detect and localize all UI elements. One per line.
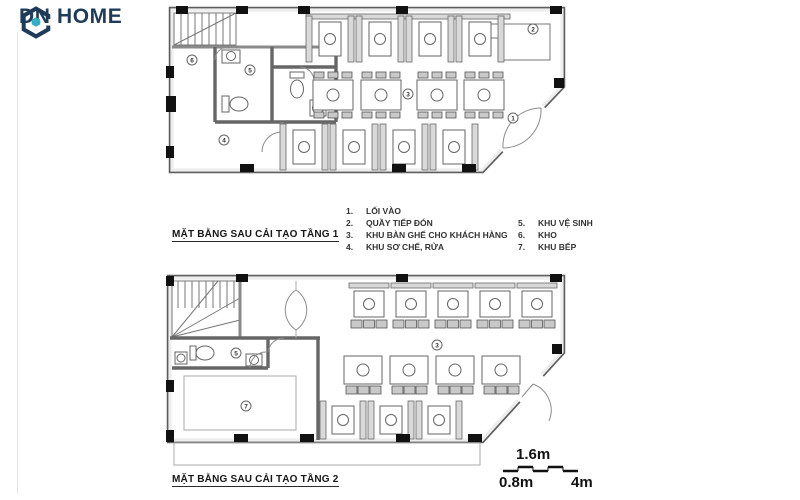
legend-item-kitchen: 7. KHU BẾP (518, 241, 593, 253)
scale-bar (503, 467, 578, 471)
legend-item-prep: 4. KHU SƠ CHẾ, RỬA (346, 241, 508, 253)
room-label-dining-f1: 3 (406, 91, 410, 98)
floor2-balcony-line (174, 443, 480, 465)
floor2-plan: 5 7 3 (166, 274, 562, 465)
room-label-prep: 4 (222, 137, 226, 144)
room-label-dining-f2: 3 (435, 342, 439, 349)
legend-item-dining: 3. KHU BÀN GHẾ CHO KHÁCH HÀNG (346, 229, 508, 241)
page: DN HOME (0, 0, 800, 500)
legend-item-entrance: 1. LỐI VÀO (346, 205, 508, 217)
legend-left-column: 1. LỐI VÀO 2. QUẦY TIẾP ĐÓN 3. KHU BÀN G… (346, 205, 508, 253)
room-label-wc-f2: 5 (234, 350, 238, 357)
scale-label-4m: 4m (571, 474, 593, 491)
room-label-entrance: 1 (511, 115, 515, 122)
legend-right-column: 5. KHU VỆ SINH 6. KHO 7. KHU BẾP (518, 217, 593, 253)
floor1-title: MẶT BẰNG SAU CẢI TẠO TẦNG 1 (172, 229, 339, 242)
floor1-plan: 6 5 4 3 2 1 (166, 6, 564, 172)
floor2-bottom-booths (320, 401, 462, 439)
room-label-counter: 2 (531, 26, 535, 33)
floor2-title: MẶT BẰNG SAU CẢI TẠO TẦNG 2 (172, 474, 339, 487)
scale-label-0-8m: 0.8m (499, 474, 533, 491)
legend-item-reception: 2. QUẦY TIẾP ĐÓN (346, 217, 508, 229)
legend-item-storage: 6. KHO (518, 229, 593, 241)
scale-label-1-6m: 1.6m (516, 446, 550, 463)
room-label-wc-f1: 5 (248, 67, 252, 74)
room-label-storage: 6 (190, 57, 194, 64)
floor1-wall-fixture (166, 96, 176, 112)
room-label-kitchen: 7 (244, 403, 248, 410)
legend-item-wc: 5. KHU VỆ SINH (518, 217, 593, 229)
